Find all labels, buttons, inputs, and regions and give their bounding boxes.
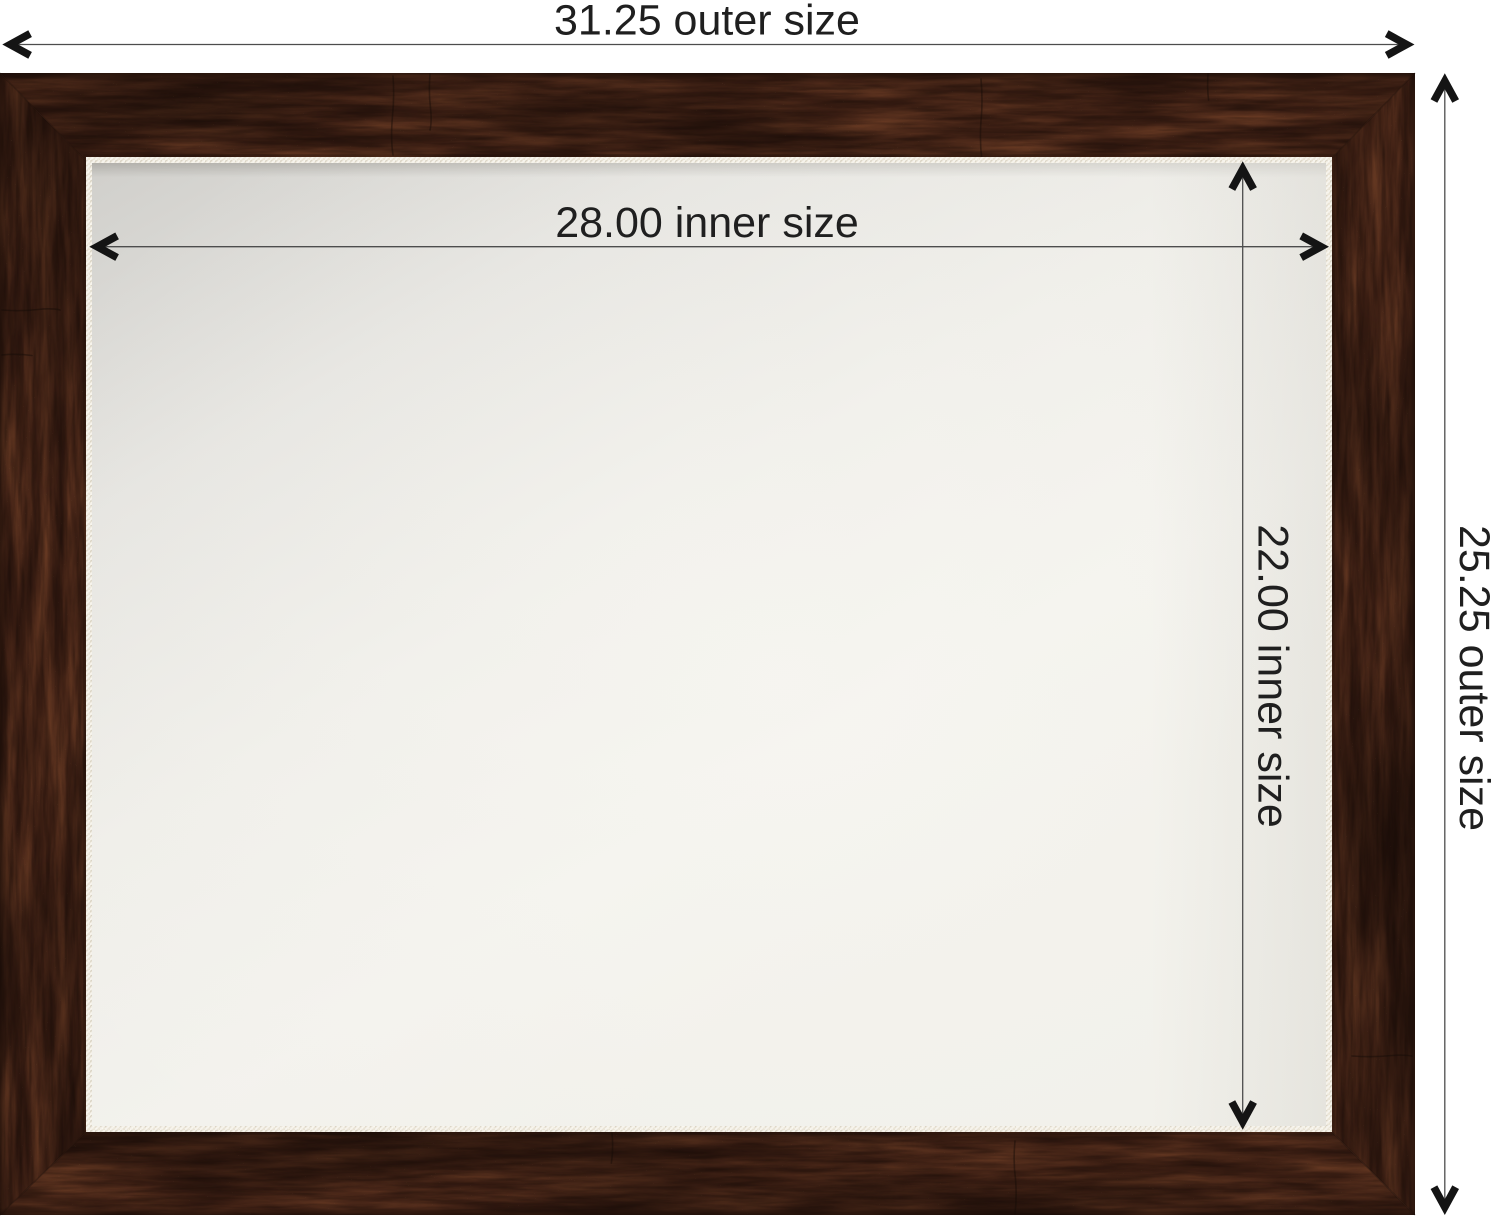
svg-text:25.25 outer size: 25.25 outer size <box>1450 525 1498 831</box>
svg-text:28.00 inner size: 28.00 inner size <box>555 199 859 247</box>
svg-text:22.00 inner size: 22.00 inner size <box>1249 524 1297 828</box>
svg-text:31.25 outer size: 31.25 outer size <box>554 0 860 44</box>
